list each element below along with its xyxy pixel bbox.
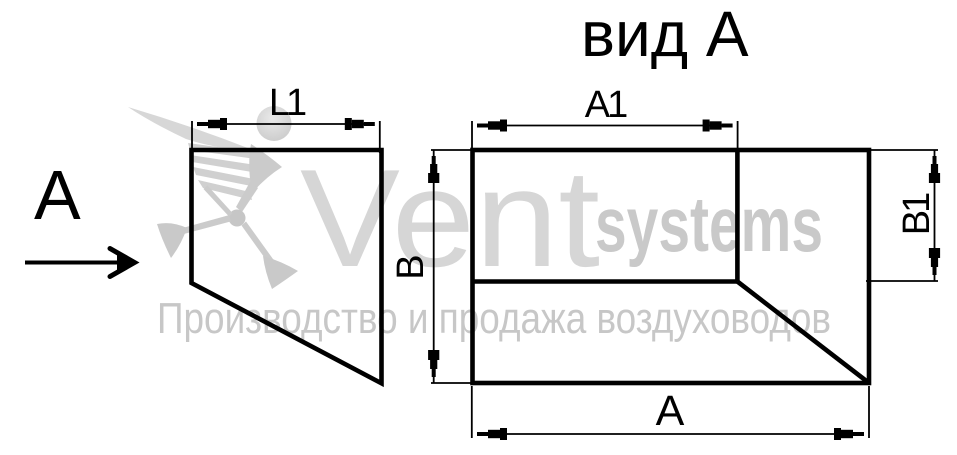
svg-text:В: В — [390, 254, 432, 279]
svg-text:L1: L1 — [269, 82, 306, 124]
svg-text:Vent: Vent — [300, 141, 600, 296]
svg-text:вид А: вид А — [581, 0, 749, 70]
svg-text:systems: systems — [595, 180, 823, 268]
svg-text:В1: В1 — [896, 193, 938, 235]
svg-text:А: А — [34, 156, 81, 234]
svg-text:А: А — [656, 387, 685, 435]
svg-text:A1: A1 — [585, 84, 627, 126]
